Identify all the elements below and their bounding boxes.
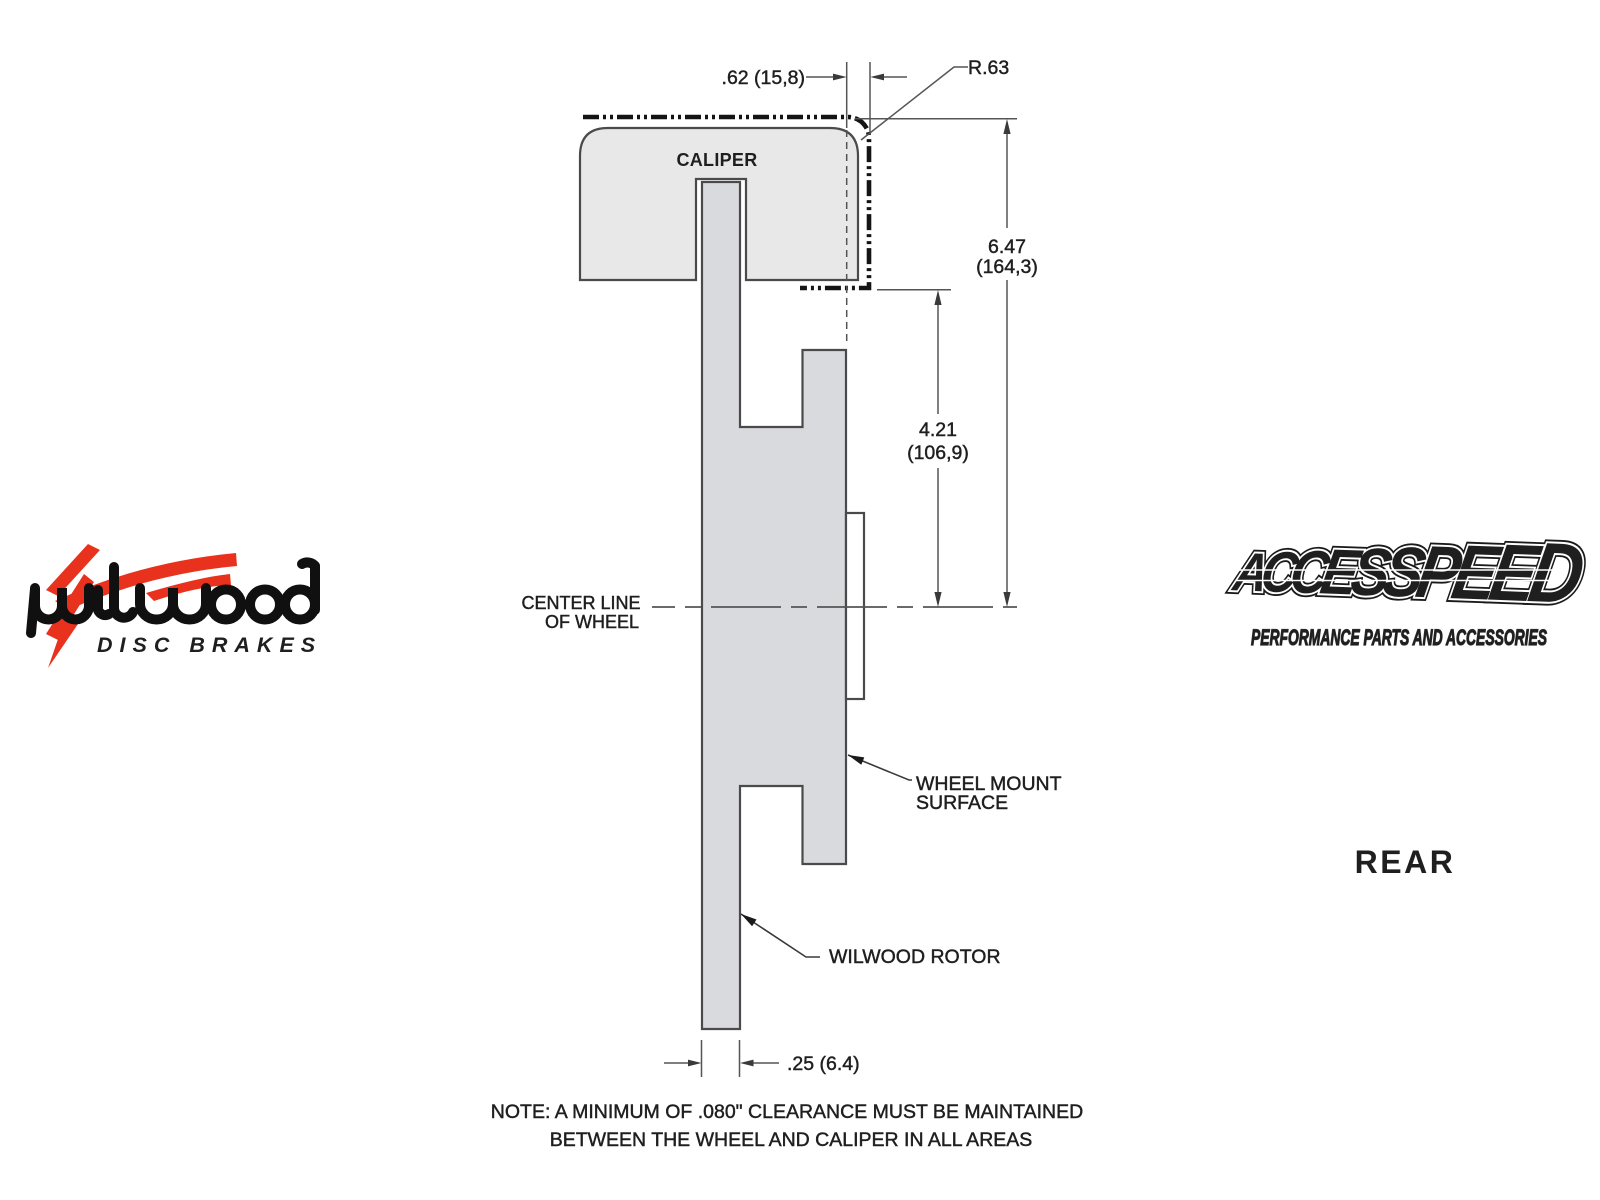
svg-text:6.47: 6.47: [988, 236, 1026, 258]
svg-text:R.63: R.63: [968, 57, 1009, 79]
svg-text:NOTE: A MINIMUM OF .080" CLEAR: NOTE: A MINIMUM OF .080" CLEARANCE MUST …: [491, 1101, 1083, 1123]
svg-text:(106,9): (106,9): [907, 442, 969, 464]
svg-text:DISC BRAKES: DISC BRAKES: [97, 633, 322, 657]
svg-text:PERFORMANCE PARTS AND ACCESSOR: PERFORMANCE PARTS AND ACCESSORIES: [1251, 625, 1547, 650]
svg-text:SURFACE: SURFACE: [916, 792, 1008, 814]
svg-text:WILWOOD ROTOR: WILWOOD ROTOR: [829, 946, 1001, 968]
svg-text:CALIPER: CALIPER: [676, 150, 757, 170]
svg-text:CENTER LINE: CENTER LINE: [521, 593, 640, 613]
svg-text:(164,3): (164,3): [976, 256, 1038, 278]
svg-text:OF WHEEL: OF WHEEL: [545, 612, 639, 632]
svg-text:.62 (15,8): .62 (15,8): [722, 67, 805, 89]
svg-text:REAR: REAR: [1355, 844, 1456, 880]
svg-text:4.21: 4.21: [919, 419, 957, 441]
svg-text:BETWEEN THE WHEEL AND CALIPER: BETWEEN THE WHEEL AND CALIPER IN ALL ARE…: [550, 1129, 1033, 1151]
svg-text:.25 (6.4): .25 (6.4): [787, 1053, 860, 1075]
